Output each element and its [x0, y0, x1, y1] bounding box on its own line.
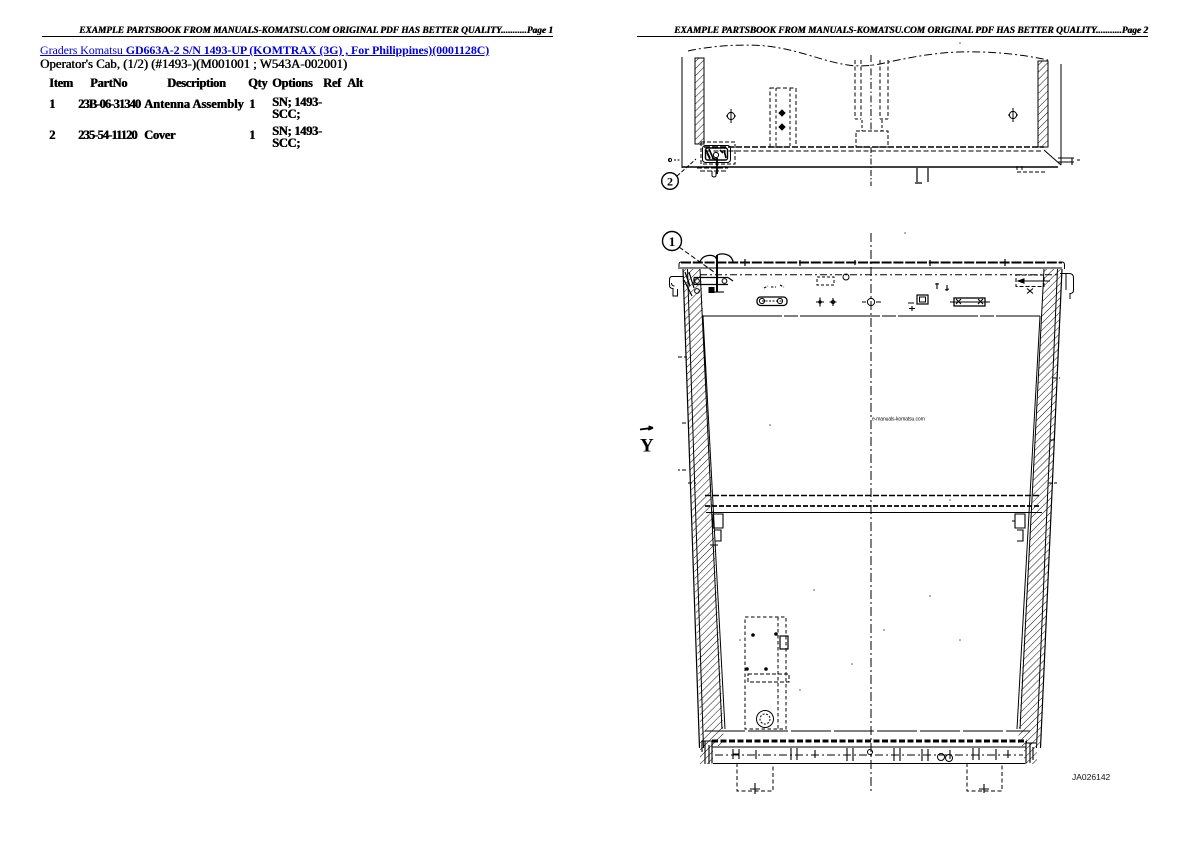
svg-text:Y: Y [640, 436, 654, 457]
svg-text:e-manuals-komatsu.com: e-manuals-komatsu.com [872, 417, 925, 423]
svg-text:2: 2 [667, 175, 673, 189]
svg-text:JA026142: JA026142 [1072, 772, 1111, 782]
svg-text:1: 1 [669, 234, 676, 249]
